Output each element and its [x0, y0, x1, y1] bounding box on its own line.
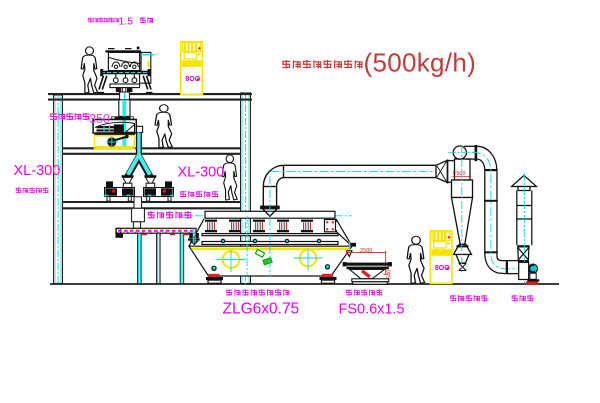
- svg-text:XL-300: XL-300: [178, 165, 225, 181]
- svg-text:XL-300: XL-300: [14, 163, 61, 179]
- svg-text:2500: 2500: [360, 248, 372, 254]
- svg-text:540: 540: [387, 270, 393, 279]
- svg-text:FS0.6x1.5: FS0.6x1.5: [339, 302, 405, 318]
- svg-text:350: 350: [89, 112, 110, 126]
- svg-text:(500kg/h): (500kg/h): [364, 48, 477, 78]
- svg-text:1.5: 1.5: [119, 16, 134, 28]
- svg-text:ZLG6x0.75: ZLG6x0.75: [223, 301, 300, 318]
